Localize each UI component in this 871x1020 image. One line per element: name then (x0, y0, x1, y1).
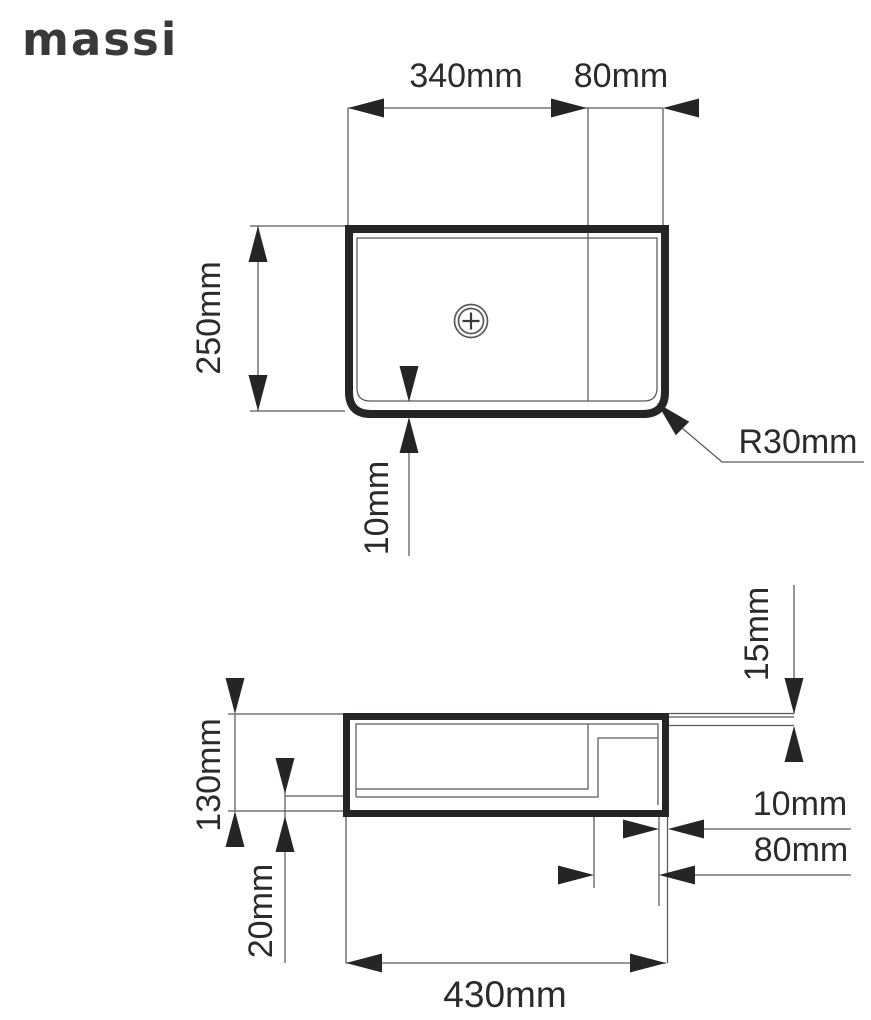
dim-corner-radius-r30mm: R30mm (657, 403, 864, 462)
dim-top-250mm: 250mm (190, 226, 345, 411)
brand-logo: massi (22, 13, 178, 66)
technical-drawing-page: massi 340mm 80mm 250mm (0, 0, 871, 1020)
dim-label-80mm: 80mm (574, 57, 668, 95)
arrowhead-up (785, 726, 804, 762)
dim-label-r30mm: R30mm (738, 423, 857, 461)
arrowhead-down (276, 758, 295, 794)
dim-label-10mm: 10mm (358, 461, 396, 555)
dim-side-130mm: 130mm (190, 678, 343, 847)
dim-label-430mm: 430mm (443, 974, 566, 1015)
arrowhead-up (249, 226, 268, 262)
arrowhead-left (659, 866, 695, 885)
section-basin-bottom (356, 724, 588, 789)
dim-label-80mm: 80mm (754, 831, 848, 869)
washbasin-drawing: massi 340mm 80mm 250mm (0, 0, 871, 1020)
arrowhead-down (249, 375, 268, 411)
arrowhead-up (226, 811, 245, 847)
dim-side-80mm: 80mm (558, 831, 851, 885)
section-outer-outline (347, 717, 666, 814)
top-view: 340mm 80mm 250mm 10mm (190, 57, 864, 556)
arrowhead-right (558, 866, 594, 885)
dim-label-10mm: 10mm (753, 785, 847, 823)
dim-label-15mm: 15mm (738, 587, 776, 681)
dim-label-250mm: 250mm (190, 261, 228, 374)
arrowhead-down (785, 678, 804, 714)
section-inner-wall (356, 724, 658, 805)
arrowhead-left (346, 954, 382, 973)
side-view: 130mm 20mm 15mm 10mm (190, 585, 851, 1015)
basin-outer-outline (349, 229, 665, 414)
arrowhead-right (630, 954, 666, 973)
arrowhead-down (400, 366, 419, 402)
section-shelf-step (356, 738, 658, 797)
dim-side-20mm: 20mm (242, 758, 343, 963)
dim-label-340mm: 340mm (409, 57, 522, 95)
basin-inner-outline (357, 238, 657, 401)
dim-side-15mm: 15mm (669, 585, 804, 762)
drain-cross (463, 313, 480, 330)
dim-label-20mm: 20mm (242, 864, 280, 958)
dim-top-10mm: 10mm (358, 366, 419, 556)
arrowhead-left (663, 99, 699, 118)
dim-side-430mm: 430mm (346, 954, 666, 1016)
dim-label-130mm: 130mm (190, 718, 228, 831)
arrowhead-right (551, 99, 587, 118)
arrowhead-down (226, 678, 245, 714)
arrowhead-up (400, 417, 419, 453)
dim-top-340mm-80mm: 340mm 80mm (348, 57, 699, 233)
arrowhead-up (276, 816, 295, 852)
drain-plus-icon (455, 305, 488, 338)
arrowhead-left (348, 99, 384, 118)
arrowhead-left (668, 820, 704, 839)
arrowhead-right (623, 820, 659, 839)
